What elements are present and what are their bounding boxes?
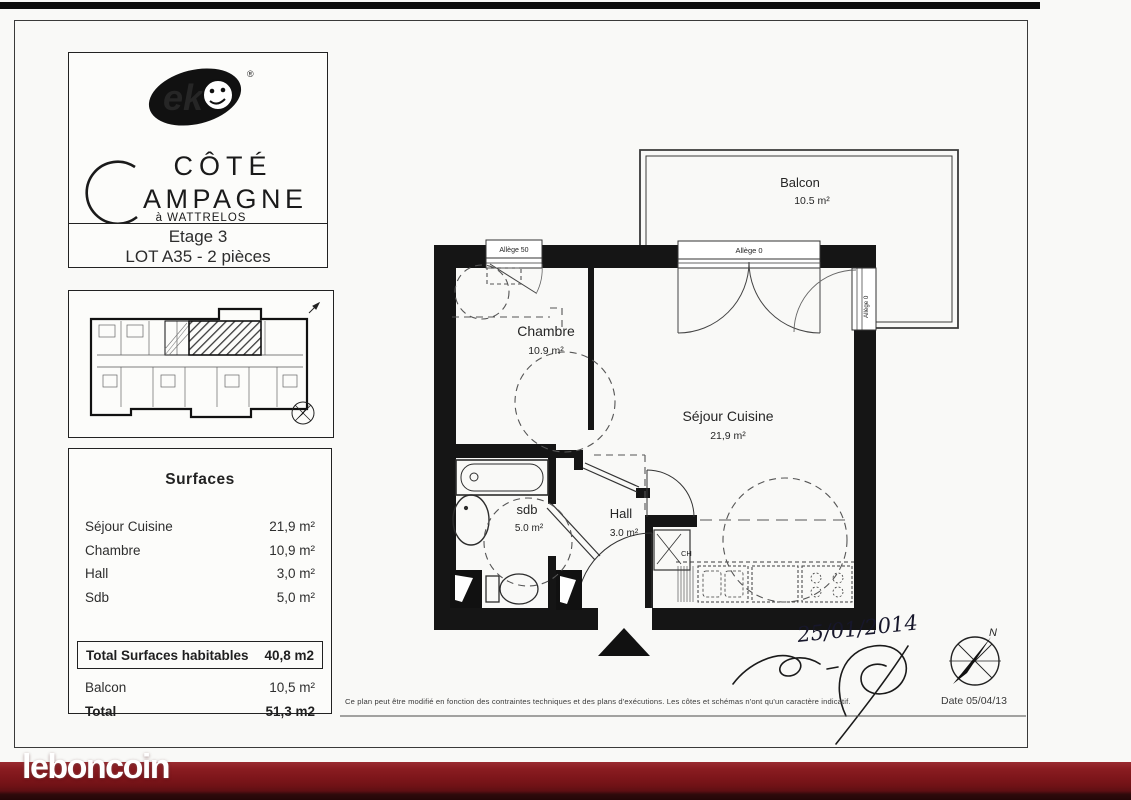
row-value: 40,8 m2 bbox=[264, 648, 314, 663]
wordmark-location: à WATTRELOS bbox=[156, 212, 247, 223]
total-row: Total 51,3 m2 bbox=[69, 700, 331, 724]
site-plan-drawing bbox=[69, 291, 331, 434]
scan-top-edge bbox=[0, 2, 1040, 9]
floor-label: Etage 3 bbox=[69, 227, 327, 247]
registered-mark: ® bbox=[247, 69, 254, 79]
surfaces-rows: Séjour Cuisine 21,9 m² Chambre 10,9 m² H… bbox=[69, 515, 331, 609]
eko-logo-letters: ek bbox=[163, 77, 205, 118]
plan-date: Date 05/04/13 bbox=[941, 695, 1007, 707]
video-edge-band bbox=[1032, 0, 1131, 765]
table-row: Chambre 10,9 m² bbox=[69, 539, 331, 563]
eko-face-icon bbox=[203, 80, 233, 110]
site-plan-box bbox=[68, 290, 334, 438]
table-row: Sdb 5,0 m² bbox=[69, 586, 331, 610]
wordmark-rest: AMPAGNE bbox=[143, 184, 308, 214]
site-plan-compass-icon bbox=[292, 402, 314, 424]
row-label: Total bbox=[85, 704, 116, 719]
wordmark-line1: CÔTÉ bbox=[173, 150, 272, 181]
row-value: 51,3 m2 bbox=[265, 704, 315, 719]
surfaces-table: Surfaces Séjour Cuisine 21,9 m² Chambre … bbox=[68, 448, 332, 714]
row-value: 21,9 m² bbox=[269, 519, 315, 534]
row-label: Balcon bbox=[85, 680, 126, 695]
plan-disclaimer: Ce plan peut être modifié en fonction de… bbox=[345, 697, 945, 706]
row-label: Sdb bbox=[85, 590, 109, 605]
row-label: Hall bbox=[85, 566, 108, 581]
balcon-row: Balcon 10,5 m² bbox=[69, 676, 331, 700]
lot-label: LOT A35 - 2 pièces bbox=[69, 247, 327, 267]
eko-logo-icon: ek ® bbox=[123, 57, 273, 137]
title-block-divider bbox=[69, 223, 327, 224]
table-row: Hall 3,0 m² bbox=[69, 562, 331, 586]
site-plan-north-arrow-icon bbox=[309, 303, 319, 313]
title-block: ek ® CÔTÉ C AMPAGNE à WATTRELOS Etage 3 … bbox=[68, 52, 328, 268]
campagne-swash-c-icon bbox=[87, 162, 137, 223]
leboncoin-band bbox=[0, 762, 1131, 800]
surfaces-title: Surfaces bbox=[69, 449, 331, 489]
row-value: 5,0 m² bbox=[277, 590, 315, 605]
cote-campagne-wordmark: CÔTÉ C AMPAGNE à WATTRELOS bbox=[73, 137, 323, 223]
leboncoin-logo: leboncoin bbox=[22, 748, 169, 787]
row-label: Total Surfaces habitables bbox=[86, 648, 249, 663]
row-value: 3,0 m² bbox=[277, 566, 315, 581]
total-habitable-row: Total Surfaces habitables 40,8 m2 bbox=[77, 641, 323, 669]
site-plan-target-unit bbox=[189, 321, 261, 355]
table-row: Séjour Cuisine 21,9 m² bbox=[69, 515, 331, 539]
row-label: Séjour Cuisine bbox=[85, 519, 173, 534]
row-value: 10,9 m² bbox=[269, 543, 315, 558]
row-label: Chambre bbox=[85, 543, 141, 558]
row-value: 10,5 m² bbox=[269, 680, 315, 695]
